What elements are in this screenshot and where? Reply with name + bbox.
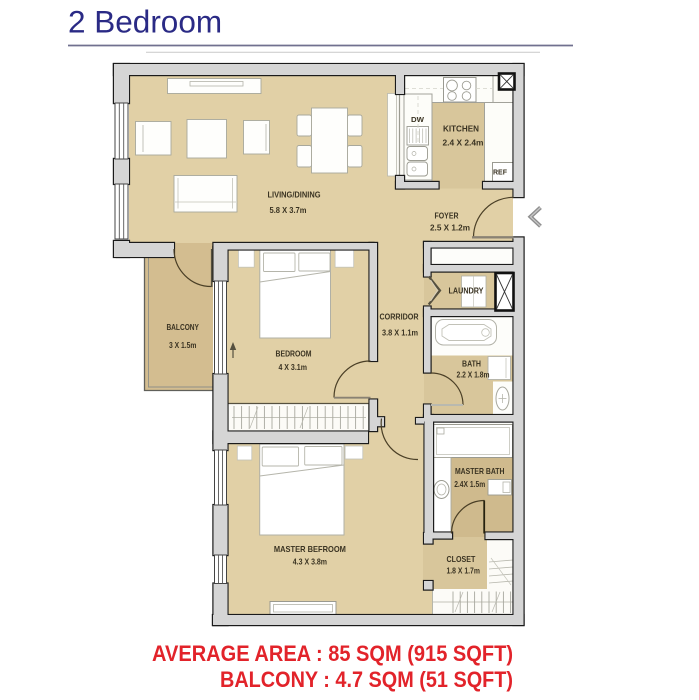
svg-text:FOYER: FOYER: [435, 211, 459, 221]
svg-text:2.4 X 2.4m: 2.4 X 2.4m: [443, 138, 484, 148]
svg-text:4.3 X 3.8m: 4.3 X 3.8m: [293, 557, 328, 567]
svg-text:CORRIDOR: CORRIDOR: [380, 312, 419, 322]
svg-text:MASTER BEFROOM: MASTER BEFROOM: [274, 544, 346, 554]
svg-text:BALCONY: BALCONY: [166, 322, 199, 332]
svg-text:DW: DW: [411, 115, 424, 124]
svg-text:LIVING/DINING: LIVING/DINING: [268, 190, 321, 200]
svg-text:3.8 X 1.1m: 3.8 X 1.1m: [382, 328, 418, 338]
svg-text:LAUNDRY: LAUNDRY: [449, 286, 484, 296]
svg-text:5.8 X 3.7m: 5.8 X 3.7m: [270, 205, 307, 215]
svg-text:3 X 1.5m: 3 X 1.5m: [169, 340, 197, 350]
svg-text:BATH: BATH: [462, 359, 481, 369]
svg-text:CLOSET: CLOSET: [447, 554, 476, 564]
svg-text:2.5 X 1.2m: 2.5 X 1.2m: [430, 223, 470, 233]
svg-text:BEDROOM: BEDROOM: [276, 349, 312, 359]
svg-text:4 X 3.1m: 4 X 3.1m: [278, 362, 307, 372]
svg-text:2.4X 1.5m: 2.4X 1.5m: [454, 479, 485, 489]
svg-text:2 Bedroom: 2 Bedroom: [68, 4, 222, 40]
svg-text:REF: REF: [493, 168, 508, 177]
svg-text:BALCONY : 4.7 SQM (51 SQFT): BALCONY : 4.7 SQM (51 SQFT): [220, 667, 513, 692]
svg-text:KITCHEN: KITCHEN: [443, 124, 479, 134]
svg-text:2.2 X 1.8m: 2.2 X 1.8m: [457, 370, 490, 380]
svg-text:1.8 X 1.7m: 1.8 X 1.7m: [446, 566, 480, 576]
svg-text:AVERAGE AREA : 85 SQM (915 SQ: AVERAGE AREA : 85 SQM (915 SQFT): [152, 641, 513, 666]
svg-text:MASTER BATH: MASTER BATH: [455, 466, 505, 476]
